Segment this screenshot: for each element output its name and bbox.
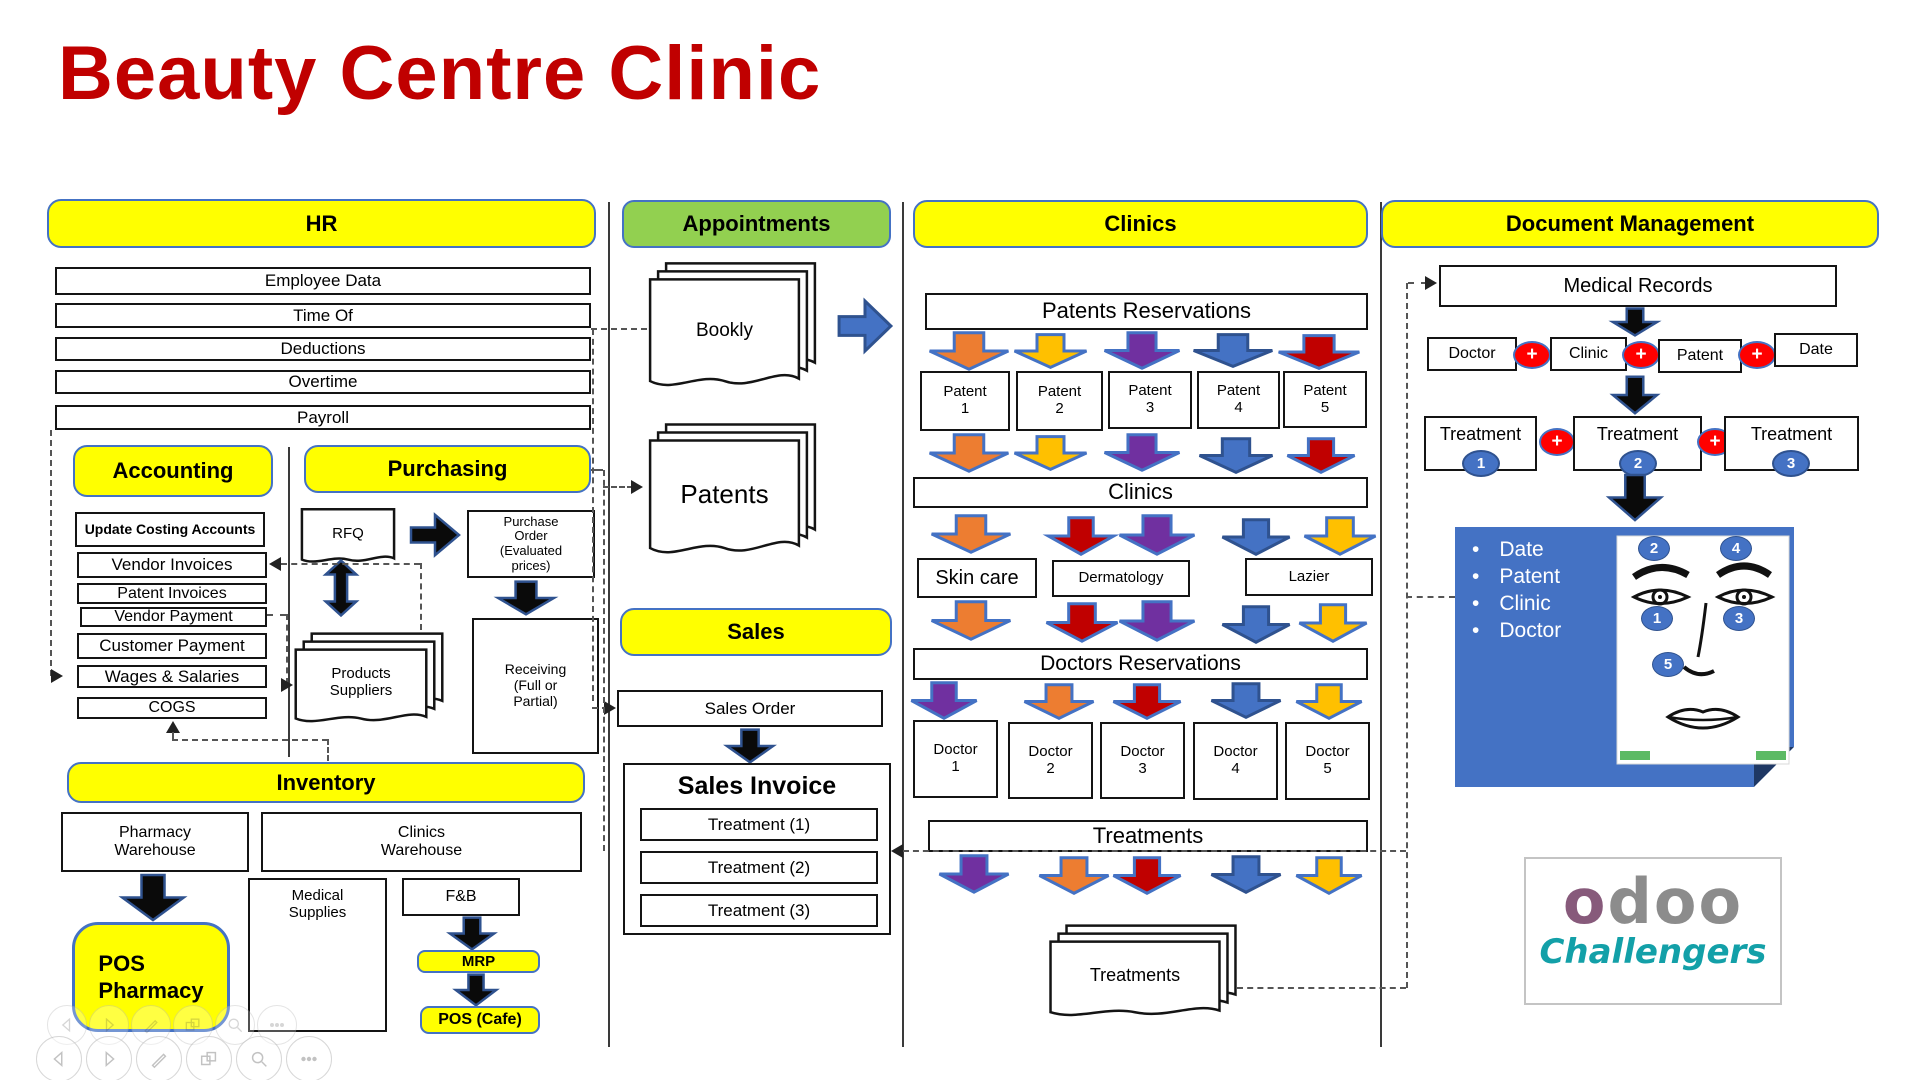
slides-icon[interactable]	[186, 1036, 232, 1080]
more-icon[interactable]	[286, 1036, 332, 1080]
plus-icon: +	[1513, 341, 1551, 369]
hr-header: HR	[47, 199, 596, 248]
separator-appointments-clinics	[902, 202, 904, 1047]
arrow-down-red	[1047, 517, 1115, 555]
arrow-down-red	[1112, 857, 1182, 894]
accounting-vendor-invoices: Vendor Invoices	[77, 552, 267, 578]
patents-reservations-bar: Patents Reservations	[925, 293, 1368, 330]
connector-vendor-invoices-drop	[420, 563, 422, 630]
products-suppliers-documents: Products Suppliers	[293, 632, 445, 730]
treatments-bar: Treatments	[928, 820, 1368, 852]
arrow-down-amber	[1013, 334, 1088, 368]
connector-arrowhead	[269, 557, 281, 571]
connector-cogs-horizontal	[172, 739, 328, 741]
arrow-down-purple	[1118, 601, 1196, 641]
invoice-item-treatment-1: Treatment (1)	[640, 808, 878, 841]
invoice-item-treatment-3: Treatment (3)	[640, 894, 878, 927]
page-title: Beauty Centre Clinic	[58, 30, 821, 117]
arrow-down-blue	[1198, 438, 1274, 473]
plus-icon: +	[1738, 341, 1776, 369]
doctor-3-box: Doctor 3	[1100, 722, 1185, 799]
sales-header: Sales	[620, 608, 892, 656]
plus-icon: +	[1539, 428, 1575, 456]
clinics-warehouse-box: Clinics Warehouse	[261, 812, 582, 872]
arrow-down-red	[1045, 603, 1119, 642]
connector-arrowhead	[891, 844, 903, 858]
patient-2-box: Patent 2	[1016, 371, 1103, 431]
connector-payroll-to-wages	[50, 430, 52, 676]
sales-order-box: Sales Order	[617, 690, 883, 727]
connector-arrowhead	[1425, 276, 1437, 290]
face-number-1: 1	[1641, 606, 1673, 631]
play-icon[interactable]	[86, 1036, 132, 1080]
arrow-order-to-invoice	[726, 729, 774, 763]
receiving-box: Receiving (Full or Partial)	[472, 618, 599, 754]
connector-treatmentsdoc	[1237, 987, 1406, 989]
arrow-down-purple	[910, 682, 978, 719]
doctor-2-box: Doctor 2	[1008, 722, 1093, 799]
patient-1-box: Patent 1	[920, 371, 1010, 431]
connector-arrowhead	[604, 701, 616, 715]
patient-5-box: Patent 5	[1283, 371, 1367, 428]
specialty-dermatology-box: Dermatology	[1052, 560, 1190, 597]
face-number-2: 2	[1638, 536, 1670, 561]
arrow-bookly-right	[838, 300, 892, 352]
arrow-down-orange	[1038, 857, 1110, 894]
arrow-records-to-chain	[1612, 308, 1658, 336]
connector-vertical-3	[1406, 283, 1408, 988]
connector-arrowhead	[51, 669, 63, 683]
arrow-warehouse-to-pos	[121, 874, 185, 921]
arrow-down-blue	[1210, 683, 1282, 718]
connector-vendor-invoices	[281, 563, 420, 565]
bookly-documents: Bookly	[647, 261, 818, 398]
accounting-update-costing: Update Costing Accounts	[75, 512, 265, 547]
doctors-reservations-bar: Doctors Reservations	[913, 648, 1368, 680]
hr-row-payroll: Payroll	[55, 405, 591, 430]
arrow-down-red	[1112, 684, 1182, 719]
face-number-5: 5	[1652, 652, 1684, 677]
clinics-bar: Clinics	[913, 477, 1368, 508]
pen-icon[interactable]	[136, 1036, 182, 1080]
connector-vertical-2	[603, 470, 605, 851]
arrow-down-red	[1286, 438, 1356, 473]
face-number-3: 3	[1723, 606, 1755, 631]
plus-icon: +	[1622, 341, 1660, 369]
arrow-rfq-to-po	[410, 514, 460, 556]
arrow-down-amber	[1295, 857, 1363, 894]
inventory-header: Inventory	[67, 762, 585, 803]
chain-clinic-box: Clinic	[1550, 337, 1627, 371]
connector-treatments-to-invoice	[903, 850, 1406, 852]
panel-bullet-doctor: •Doctor	[1472, 619, 1561, 643]
doctor-1-box: Doctor 1	[913, 720, 998, 798]
arrow-down-blue	[1221, 606, 1291, 643]
arrow-down-blue	[1192, 334, 1274, 367]
panel-bullet-clinic: •Clinic	[1472, 592, 1551, 616]
arrow-down-purple	[1118, 515, 1196, 555]
arrow-down-amber	[1303, 517, 1377, 555]
connector-cogs-to-inventory	[327, 739, 329, 761]
accounting-cogs: COGS	[77, 697, 267, 719]
arrow-down-orange	[928, 434, 1010, 472]
specialty-skin-care-box: Skin care	[917, 558, 1037, 598]
arrow-down-blue	[1210, 856, 1282, 893]
patient-3-box: Patent 3	[1108, 371, 1192, 429]
arrow-down-amber	[1295, 684, 1363, 719]
hr-row-overtime: Overtime	[55, 370, 591, 394]
arrow-down-amber	[1013, 436, 1088, 470]
arrow-down-orange	[930, 515, 1012, 553]
accounting-header: Accounting	[73, 445, 273, 497]
hr-row-employee-data: Employee Data	[55, 267, 591, 295]
connector-vendor-payment-drop	[286, 614, 288, 684]
odoo-wordmark: odoo	[1526, 871, 1780, 933]
hr-header-label: HR	[306, 211, 338, 237]
arrow-mrp-to-poscafe	[455, 974, 497, 1006]
arrow-down-blue	[1221, 519, 1291, 555]
sales-invoice-title: Sales Invoice	[623, 772, 891, 801]
arrow-down-purple	[938, 855, 1010, 893]
arrow-chain-to-treatments	[1612, 376, 1658, 414]
connector-arrowhead	[281, 678, 293, 692]
zoom-icon[interactable]	[236, 1036, 282, 1080]
odoo-challengers-logo: odoo Challengers	[1524, 857, 1782, 1005]
patents-documents: Patents	[647, 422, 818, 566]
connector-vendor-payment	[267, 614, 286, 616]
docmgmt-header: Document Management	[1381, 200, 1879, 248]
panel-bullet-patent: •Patent	[1472, 565, 1560, 589]
connector-to-patents	[603, 486, 633, 488]
treatments-documents: Treatments	[1047, 924, 1239, 1024]
arrow-rfq-suppliers-double	[324, 560, 358, 616]
connector-vertical-1	[592, 329, 594, 701]
challengers-wordmark: Challengers	[1526, 935, 1780, 969]
slide-canvas: Beauty Centre Clinic HR Employee Data Ti…	[0, 0, 1920, 1080]
face-diagram-image	[1616, 535, 1790, 765]
arrow-down-amber	[1298, 604, 1368, 642]
fnb-box: F&B	[402, 878, 520, 916]
purchasing-header: Purchasing	[304, 445, 591, 493]
connector-hr-to-bookly	[591, 328, 647, 330]
specialty-lazier-box: Lazier	[1245, 558, 1373, 596]
connector-arrowhead	[631, 480, 643, 494]
panel-bullet-date: •Date	[1472, 538, 1544, 562]
separator-accounting-purchasing	[288, 447, 290, 757]
arrow-down-red	[1277, 335, 1361, 369]
chain-patent-box: Patent	[1658, 339, 1742, 373]
doctor-5-box: Doctor 5	[1285, 722, 1370, 800]
connector-to-panel	[1406, 596, 1455, 598]
separator-clinics-docmgmt	[1380, 202, 1382, 1047]
accounting-patent-invoices: Patent Invoices	[77, 583, 267, 604]
chain-doctor-box: Doctor	[1427, 337, 1517, 371]
arrow-down-purple	[1103, 434, 1181, 471]
patient-4-box: Patent 4	[1197, 371, 1280, 429]
arrow-down-orange	[928, 332, 1010, 370]
pos-cafe-box: POS (Cafe)	[420, 1006, 540, 1034]
invoice-item-treatment-2: Treatment (2)	[640, 851, 878, 884]
arrow-fnb-to-mrp	[449, 917, 495, 950]
arrow-treatments-to-panel	[1608, 474, 1662, 521]
arrow-po-to-receiving	[497, 581, 555, 615]
arrow-down-purple	[1103, 332, 1181, 369]
hr-row-time-off: Time Of	[55, 303, 591, 328]
back-icon[interactable]	[36, 1036, 82, 1080]
face-number-4: 4	[1720, 536, 1752, 561]
pharmacy-warehouse-box: Pharmacy Warehouse	[61, 812, 249, 872]
purchase-order-box: Purchase Order (Evaluated prices)	[467, 510, 595, 578]
accounting-customer-payment: Customer Payment	[77, 633, 267, 659]
accounting-vendor-payment: Vendor Payment	[80, 607, 267, 627]
treatment-2-number-badge: 2	[1619, 450, 1657, 477]
medical-records-box: Medical Records	[1439, 265, 1837, 307]
accounting-wages-salaries: Wages & Salaries	[77, 665, 267, 688]
appointments-header: Appointments	[622, 200, 891, 248]
treatment-1-number-badge: 1	[1462, 450, 1500, 477]
hr-row-deductions: Deductions	[55, 337, 591, 361]
connector-purchasing-branch	[591, 469, 603, 471]
doctor-4-box: Doctor 4	[1193, 722, 1278, 800]
treatment-3-number-badge: 3	[1772, 450, 1810, 477]
mrp-box: MRP	[417, 950, 540, 973]
chain-date-box: Date	[1774, 333, 1858, 367]
arrow-down-orange	[930, 601, 1012, 640]
arrow-down-orange	[1023, 684, 1095, 719]
clinics-header: Clinics	[913, 200, 1368, 248]
